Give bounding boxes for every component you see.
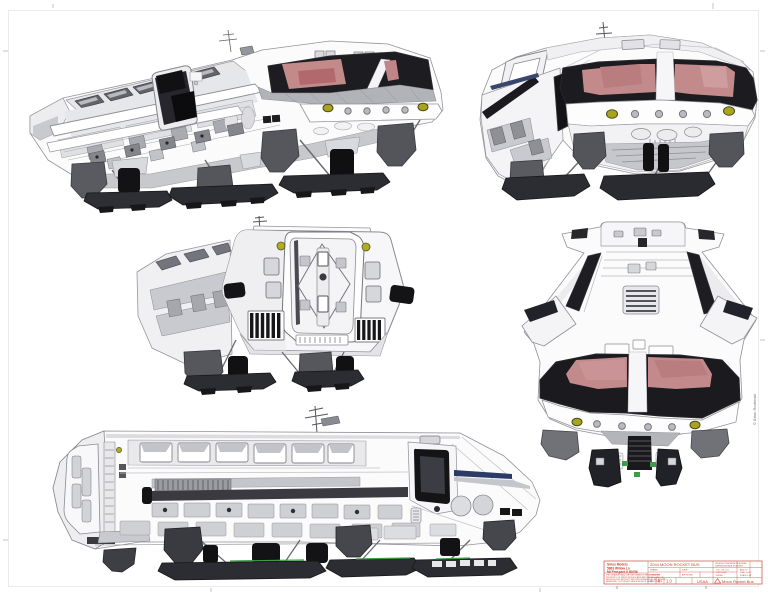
svg-text:RESERVED. COPYRIGHT SIRIUS MOD: RESERVED. COPYRIGHT SIRIUS MODELS 2001 M… [606, 581, 663, 583]
svg-text:Moon Rocket Bus: Moon Rocket Bus [722, 579, 754, 584]
svg-text:Mt Prospect Il 60056: Mt Prospect Il 60056 [607, 570, 638, 574]
svg-text:1.0: 1.0 [666, 579, 672, 584]
svg-text:DATE: DATE [682, 568, 688, 571]
svg-text:FRAC ±1/32: FRAC ±1/32 [740, 571, 752, 574]
svg-text:DIMENSIONS ARE IN INCHES: DIMENSIONS ARE IN INCHES [715, 564, 744, 567]
svg-text:SCALE 1:48: SCALE 1:48 [740, 574, 752, 577]
svg-text:2044 MOON ROCKET BUS: 2044 MOON ROCKET BUS [650, 562, 700, 567]
svg-text:© Brian Rodenski: © Brian Rodenski [752, 394, 757, 425]
svg-text:CHECKED: CHECKED [650, 575, 660, 577]
svg-text:FINISH: FINISH [716, 575, 723, 577]
svg-text:DRAWN: DRAWN [650, 568, 658, 571]
svg-text:ANG ±1°: ANG ±1° [740, 568, 748, 571]
svg-text:.XXX ±.005: .XXX ±.005 [716, 572, 727, 574]
svg-text:APPROVED: APPROVED [682, 574, 694, 577]
svg-text:USAA: USAA [697, 579, 708, 584]
